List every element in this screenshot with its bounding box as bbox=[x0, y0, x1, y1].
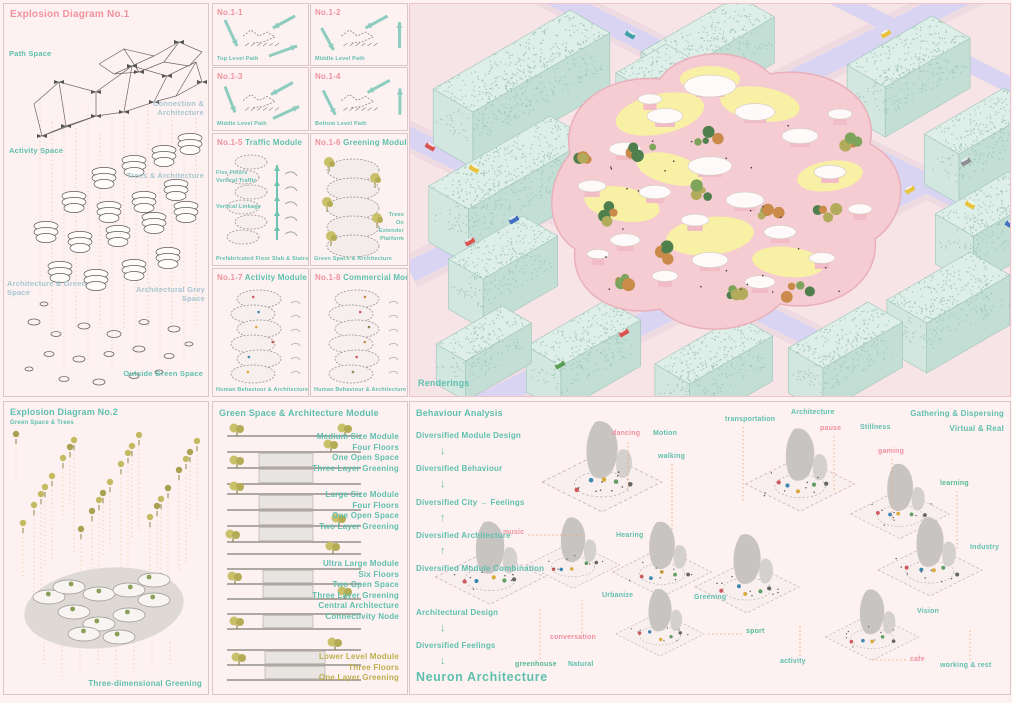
tag-walking: walking bbox=[658, 453, 685, 461]
module-1-1-caption: Top Level Path bbox=[217, 56, 259, 62]
flow-diversified-feelings: Diversified Feelings bbox=[416, 641, 496, 650]
explosion-1-sketch bbox=[4, 4, 208, 396]
label-architectural-grey-space: Architectural Grey Space bbox=[125, 286, 205, 303]
green-module-block-1: Medium Size Module Four Floors One Open … bbox=[312, 432, 399, 474]
explosion-2-subtitle: Green Space & Trees bbox=[10, 420, 74, 427]
green-module-block-2: Large Size Module Four Floors One Open S… bbox=[319, 490, 399, 532]
behaviour-illustration bbox=[410, 402, 1010, 694]
label-activity-space: Activity Space bbox=[9, 147, 63, 156]
block-3-line: Ultra Large Module bbox=[312, 559, 399, 570]
tag-music: music bbox=[503, 529, 524, 537]
tag-urbanize: Urbanize bbox=[602, 592, 633, 600]
panel-module-1-4: No.1-4 Bottom Level Path bbox=[310, 67, 408, 131]
block-3-line: Two Open Space bbox=[312, 580, 399, 591]
explosion-2-title: Explosion Diagram No.2 bbox=[10, 407, 118, 417]
tag-conversation: conversation bbox=[550, 634, 596, 642]
module-1-4-caption: Bottom Level Path bbox=[315, 121, 367, 127]
label-outside-green-space: Outside Green Space bbox=[123, 370, 203, 379]
module-1-8-title: No.1-8 Commercial Module bbox=[315, 273, 408, 282]
tag-working-rest: working & rest bbox=[940, 662, 991, 670]
block-3-line: Central Architecture bbox=[312, 601, 399, 612]
module-1-6-caption: Green Space & Architecture bbox=[314, 256, 392, 262]
flow-diversified-behaviour: Diversified Behaviour bbox=[416, 464, 502, 473]
module-1-7-sketch bbox=[213, 269, 308, 396]
tag-greenhouse: greenhouse bbox=[515, 661, 557, 669]
tag-cafe: cafe bbox=[910, 656, 925, 664]
block-4-line: One Layer Greening bbox=[319, 673, 399, 684]
panel-module-1-7: No.1-7 Activity Module Human Behaviour &… bbox=[212, 268, 309, 397]
module-1-6-side-2: On bbox=[396, 220, 404, 226]
module-1-6-sketch bbox=[311, 134, 407, 265]
arrow-right-icon: → bbox=[480, 498, 488, 507]
tag-industry: Industry bbox=[970, 544, 999, 552]
module-1-8-name: Commercial Module bbox=[343, 273, 408, 282]
block-3-line: Three Layer Greening bbox=[312, 591, 399, 602]
module-1-6-number: No.1-6 bbox=[315, 138, 341, 147]
module-1-6-name: Greening Module bbox=[343, 138, 408, 147]
tag-gaming: gaming bbox=[878, 448, 904, 456]
flow-feelings-text: Feelings bbox=[491, 498, 525, 507]
panel-module-1-3: No.1-3 Middle Level Path bbox=[212, 67, 309, 131]
module-1-7-name: Activity Module bbox=[245, 273, 307, 282]
flow-neuron-architecture: Neuron Architecture bbox=[416, 670, 548, 684]
block-2-line: One Open Space bbox=[319, 511, 399, 522]
module-1-3-caption: Middle Level Path bbox=[217, 121, 267, 127]
module-1-7-title: No.1-7 Activity Module bbox=[217, 273, 307, 282]
module-1-5-label-2: Vertical Traffic bbox=[216, 178, 257, 184]
flow-city-text: Diversified City bbox=[416, 498, 477, 507]
block-2-line: Two Layer Greening bbox=[319, 522, 399, 533]
module-1-5-label-1: Five Floors bbox=[216, 170, 248, 176]
explosion-1-title: Explosion Diagram No.1 bbox=[10, 9, 129, 21]
arrow-up-icon: ↑ bbox=[440, 513, 446, 523]
flow-diversified-module-combination: Diversified Module Combination bbox=[416, 564, 544, 573]
panel-module-1-6: No.1-6 Greening Module Trees On Extender… bbox=[310, 133, 408, 266]
tag-learning: learning bbox=[940, 480, 969, 488]
module-1-7-caption: Human Behaviour & Architecture bbox=[216, 387, 308, 393]
tag-hearing: Hearing bbox=[616, 532, 643, 540]
label-three-dimensional-greening: Three-dimensional Greening bbox=[88, 679, 202, 688]
tag-motion: Motion bbox=[653, 430, 677, 438]
tag-natural: Natural bbox=[568, 661, 594, 669]
tag-dancing: dancing bbox=[612, 430, 640, 438]
panel-module-1-8: No.1-8 Commercial Module Human Behaviour… bbox=[310, 268, 408, 397]
green-module-block-4: Lower Level Module Three Floors One Laye… bbox=[319, 652, 399, 684]
panel-renderings: Renderings bbox=[409, 3, 1011, 397]
presentation-board: Explosion Diagram No.1 Path Space Connec… bbox=[0, 0, 1014, 717]
block-4-line: Three Floors bbox=[319, 663, 399, 674]
arrow-down-icon: ↓ bbox=[440, 446, 446, 456]
panel-behaviour-analysis: Behaviour Analysis Diversified Module De… bbox=[409, 401, 1011, 695]
panel-green-space-architecture-module: Green Space & Architecture Module Medium… bbox=[212, 401, 408, 695]
flow-architectural-design: Architectural Design bbox=[416, 608, 498, 617]
module-1-2-caption: Middle Level Path bbox=[315, 56, 365, 62]
label-virtual-real: Virtual & Real bbox=[949, 424, 1004, 433]
block-3-line: Six Floors bbox=[312, 570, 399, 581]
module-1-6-side-4: Platform bbox=[380, 236, 404, 242]
label-path-space: Path Space bbox=[9, 50, 51, 59]
module-1-8-caption: Human Behaviour & Architecture bbox=[314, 387, 406, 393]
module-1-8-sketch bbox=[311, 269, 407, 396]
module-1-7-number: No.1-7 bbox=[217, 273, 243, 282]
arrow-up-icon: ↑ bbox=[440, 546, 446, 556]
renderings-caption: Renderings bbox=[418, 378, 470, 388]
flow-diversified-architecture: Diversified Architecture bbox=[416, 531, 511, 540]
tag-transportation: transportation bbox=[725, 416, 775, 424]
panel-explosion-diagram-1: Explosion Diagram No.1 Path Space Connec… bbox=[3, 3, 209, 397]
module-1-5-caption: Prefabricated Floor Slab & Stairs bbox=[216, 256, 309, 262]
module-1-4-number: No.1-4 bbox=[315, 72, 341, 81]
module-1-1-number: No.1-1 bbox=[217, 8, 243, 17]
arrow-down-icon: ↓ bbox=[440, 479, 446, 489]
tag-architecture: Architecture bbox=[791, 409, 835, 417]
tag-activity: activity bbox=[780, 658, 806, 666]
block-1-line: Four Floors bbox=[312, 443, 399, 454]
renderings-illustration bbox=[410, 4, 1010, 396]
tag-sport: sport bbox=[746, 628, 765, 636]
explosion-2-sketch bbox=[4, 402, 208, 694]
panel-module-1-5: No.1-5 Traffic Module Five Floors Vertic… bbox=[212, 133, 309, 266]
module-1-8-number: No.1-8 bbox=[315, 273, 341, 282]
module-1-6-side-3: Extender bbox=[379, 228, 404, 234]
module-1-2-number: No.1-2 bbox=[315, 8, 341, 17]
module-1-6-side-1: Trees bbox=[389, 212, 404, 218]
label-gathering-dispersing: Gathering & Dispersing bbox=[910, 409, 1004, 418]
module-1-5-title: No.1-5 Traffic Module bbox=[217, 138, 302, 147]
block-1-line: Three Layer Greening bbox=[312, 464, 399, 475]
panel-explosion-diagram-2: Explosion Diagram No.2 Green Space & Tre… bbox=[3, 401, 209, 695]
label-connection-architecture: Connection & Architecture bbox=[116, 100, 204, 117]
tag-vision: Vision bbox=[917, 608, 939, 616]
module-1-5-number: No.1-5 bbox=[217, 138, 243, 147]
module-1-5-sketch bbox=[213, 134, 308, 265]
panel-module-1-2: No.1-2 Middle Level Path bbox=[310, 3, 408, 66]
block-3-line: Connectivity Node bbox=[312, 612, 399, 623]
block-2-line: Four Floors bbox=[319, 501, 399, 512]
flow-diversified-module-design: Diversified Module Design bbox=[416, 431, 521, 440]
arrow-down-icon: ↓ bbox=[440, 623, 446, 633]
label-trees-architecture: Trees & Architecture bbox=[126, 172, 204, 181]
tag-stillness: Stillness bbox=[860, 424, 891, 432]
module-1-5-name: Traffic Module bbox=[245, 138, 302, 147]
block-1-line: Medium Size Module bbox=[312, 432, 399, 443]
block-4-line: Lower Level Module bbox=[319, 652, 399, 663]
block-1-line: One Open Space bbox=[312, 453, 399, 464]
panel-module-1-1: No.1-1 Top Level Path bbox=[212, 3, 309, 66]
label-architecture-green-space: Architecture & Green Space bbox=[7, 280, 89, 297]
behaviour-title: Behaviour Analysis bbox=[416, 408, 503, 418]
green-module-title: Green Space & Architecture Module bbox=[219, 408, 379, 418]
flow-diversified-city: Diversified City → Feelings bbox=[416, 498, 525, 507]
arrow-down-icon: ↓ bbox=[440, 656, 446, 666]
tag-greening: Greening bbox=[694, 594, 726, 602]
module-1-3-number: No.1-3 bbox=[217, 72, 243, 81]
block-2-line: Large Size Module bbox=[319, 490, 399, 501]
tag-pause: pause bbox=[820, 425, 841, 433]
green-module-block-3: Ultra Large Module Six Floors Two Open S… bbox=[312, 559, 399, 622]
module-1-5-label-3: Vertical Linkage bbox=[216, 204, 261, 210]
module-1-6-title: No.1-6 Greening Module bbox=[315, 138, 408, 147]
